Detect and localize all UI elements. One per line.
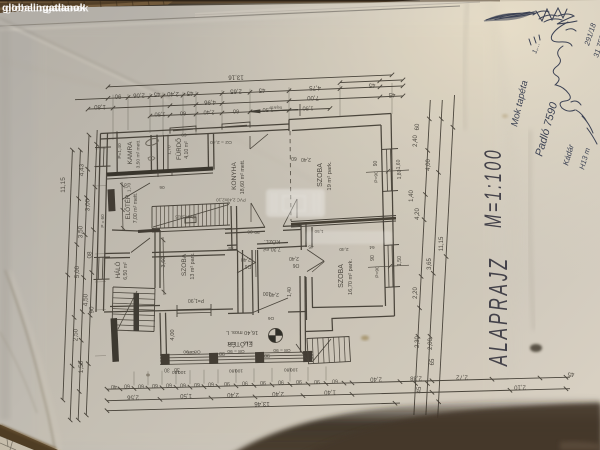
svg-text:KAMRA: KAMRA [127, 141, 134, 164]
svg-text:90: 90 [260, 379, 266, 385]
svg-text:O8 = 90: O8 = 90 [227, 348, 245, 354]
svg-text:1,50: 1,50 [78, 360, 85, 373]
svg-text:90: 90 [219, 350, 225, 356]
svg-text:45: 45 [258, 86, 265, 92]
svg-text:08: 08 [86, 251, 93, 259]
svg-text:60: 60 [415, 123, 421, 130]
svg-text:7,20 m²: 7,20 m² [263, 246, 281, 252]
svg-text:60: 60 [181, 132, 187, 138]
svg-text:17x17,5x25: 17x17,5x25 [175, 215, 197, 220]
svg-text:1,70: 1,70 [127, 183, 133, 193]
svg-text:3,00: 3,00 [84, 198, 91, 211]
svg-text:60: 60 [332, 377, 338, 383]
svg-text:13,16: 13,16 [228, 74, 244, 81]
svg-text:90: 90 [254, 230, 260, 235]
svg-text:1,40: 1,40 [287, 287, 293, 297]
svg-text:2,30: 2,30 [415, 336, 421, 348]
svg-text:45: 45 [368, 82, 375, 88]
svg-text:3,60: 3,60 [161, 257, 167, 268]
svg-text:2,72: 2,72 [456, 374, 468, 380]
svg-text:60: 60 [166, 382, 172, 388]
svg-text:100: 100 [235, 368, 243, 374]
svg-text:2,40: 2,40 [241, 256, 251, 262]
svg-text:O8 = 90: O8 = 90 [273, 347, 291, 353]
svg-text:3,50: 3,50 [77, 225, 84, 238]
svg-text:60: 60 [180, 381, 186, 387]
svg-text:ELŐTÉR: ELŐTÉR [125, 194, 132, 219]
svg-text:1,50: 1,50 [155, 111, 166, 117]
svg-text:bejárat: bejárat [269, 106, 282, 110]
svg-text:P=90: P=90 [374, 171, 380, 183]
svg-text:18,60 m² mett.: 18,60 m² mett. [240, 160, 246, 195]
svg-text:1,50: 1,50 [303, 104, 314, 110]
svg-text:O2 = 2,40: O2 = 2,40 [210, 139, 232, 145]
svg-text:2,40: 2,40 [413, 135, 419, 147]
svg-text:60: 60 [138, 382, 144, 388]
svg-text:45: 45 [388, 91, 395, 97]
svg-text:2,00: 2,00 [428, 338, 434, 350]
svg-text:45: 45 [308, 244, 314, 250]
svg-text:2,50: 2,50 [72, 328, 79, 341]
svg-text:45: 45 [567, 371, 574, 377]
svg-text:11,15: 11,15 [439, 236, 445, 251]
svg-text:2,06: 2,06 [133, 92, 145, 98]
svg-text:13,46: 13,46 [254, 400, 270, 407]
svg-text:2,40: 2,40 [269, 291, 279, 297]
svg-text:2,40: 2,40 [272, 390, 284, 396]
svg-text:7,00 m² mett.: 7,00 m² mett. [133, 193, 139, 224]
svg-text:06: 06 [247, 230, 253, 235]
svg-text:90: 90 [314, 378, 320, 384]
svg-text:90: 90 [264, 352, 270, 358]
svg-text:globalingatlanok: globalingatlanok [5, 3, 89, 15]
svg-text:1,50: 1,50 [180, 392, 192, 398]
svg-text:4,50: 4,50 [83, 293, 90, 306]
svg-text:3,65: 3,65 [427, 258, 433, 270]
svg-text:1,40: 1,40 [324, 388, 336, 394]
svg-text:P=1,90: P=1,90 [188, 297, 204, 303]
svg-text:4,00: 4,00 [170, 329, 176, 340]
svg-text:40: 40 [111, 383, 117, 389]
svg-text:6,50 m²: 6,50 m² [123, 262, 129, 280]
svg-text:2,40: 2,40 [339, 246, 349, 252]
svg-text:1,40: 1,40 [409, 190, 415, 202]
svg-text:2,40: 2,40 [289, 255, 299, 261]
svg-text:2,40: 2,40 [204, 109, 215, 115]
svg-text:90: 90 [88, 306, 95, 314]
svg-text:19 m² park.: 19 m² park. [327, 161, 333, 191]
svg-text:P=90: P=90 [375, 266, 381, 278]
svg-text:1,50: 1,50 [397, 256, 403, 266]
svg-text:60: 60 [124, 383, 130, 389]
svg-text:7,00: 7,00 [307, 94, 319, 100]
svg-text:1,60: 1,60 [396, 159, 402, 169]
svg-text:60: 60 [208, 381, 214, 387]
svg-text:16,70 m² park.: 16,70 m² park. [348, 259, 354, 296]
svg-text:45: 45 [186, 89, 193, 95]
svg-text:1,70: 1,70 [167, 145, 172, 155]
svg-text:1,80: 1,80 [397, 169, 403, 179]
svg-text:4,20: 4,20 [415, 208, 421, 220]
svg-text:90: 90 [296, 378, 302, 384]
svg-text:90: 90 [242, 380, 248, 386]
svg-text:PVC 2,40x2,10: PVC 2,40x2,10 [216, 198, 246, 203]
svg-text:16,40 mos. L: 16,40 mos. L [226, 329, 258, 335]
svg-text:O6: O6 [244, 263, 251, 269]
svg-text:4,00: 4,00 [426, 159, 432, 171]
svg-text:60: 60 [152, 382, 158, 388]
svg-text:90: 90 [373, 161, 379, 167]
svg-text:SZOBA: SZOBA [317, 163, 324, 187]
svg-text:2,40: 2,40 [167, 90, 179, 96]
svg-text:ELŐTÉR: ELŐTÉR [227, 340, 253, 349]
svg-text:ALAPRAJZ: ALAPRAJZ [483, 256, 512, 367]
svg-text:2,65: 2,65 [230, 87, 242, 93]
svg-text:45: 45 [228, 245, 234, 251]
svg-text:4,10 m²: 4,10 m² [184, 141, 190, 159]
svg-text:M=1:100: M=1:100 [481, 148, 507, 228]
svg-text:2,20: 2,20 [413, 287, 419, 299]
svg-text:P = 60: P = 60 [100, 214, 105, 228]
svg-text:P=1,40: P=1,40 [117, 143, 123, 159]
svg-text:KÖZL.: KÖZL. [263, 238, 280, 245]
svg-text:65: 65 [430, 358, 436, 365]
svg-text:2,56: 2,56 [127, 394, 139, 400]
svg-text:4,43: 4,43 [79, 163, 86, 176]
svg-text:2,40: 2,40 [370, 376, 382, 382]
svg-text:90: 90 [370, 255, 376, 261]
svg-text:60: 60 [291, 155, 297, 161]
svg-text:2,10: 2,10 [514, 384, 526, 390]
svg-text:FÜRDŐ: FÜRDŐ [176, 138, 183, 160]
svg-text:90: 90 [114, 92, 121, 98]
svg-text:4,96: 4,96 [204, 99, 216, 105]
svg-text:5,00: 5,00 [74, 265, 81, 278]
svg-text:90: 90 [278, 379, 284, 385]
svg-text:SZOBA: SZOBA [181, 253, 188, 276]
svg-text:06: 06 [159, 185, 165, 190]
svg-text:1,80: 1,80 [94, 103, 106, 109]
svg-text:KONYHA: KONYHA [231, 161, 238, 189]
svg-text:100: 100 [290, 366, 298, 372]
svg-text:30: 30 [164, 367, 170, 373]
svg-text:O6: O6 [292, 262, 299, 268]
svg-text:2,40: 2,40 [301, 156, 311, 162]
svg-text:13 m² park.: 13 m² park. [190, 252, 196, 279]
svg-text:30: 30 [174, 366, 180, 372]
svg-text:SZOBA: SZOBA [338, 264, 345, 288]
svg-text:2,40: 2,40 [227, 391, 239, 397]
svg-text:90: 90 [224, 380, 230, 386]
svg-text:4,75: 4,75 [309, 84, 321, 90]
svg-text:60: 60 [233, 107, 239, 113]
svg-text:45: 45 [153, 91, 160, 97]
svg-text:11,15: 11,15 [60, 177, 67, 193]
svg-text:O6: O6 [267, 315, 274, 321]
svg-text:60: 60 [194, 381, 200, 387]
svg-text:HÁLÓ: HÁLÓ [115, 261, 122, 278]
svg-text:O8=: O8= [185, 349, 194, 355]
svg-text:3,50 m² mett.: 3,50 m² mett. [136, 140, 142, 169]
svg-text:64: 64 [369, 244, 375, 250]
svg-text:2,38: 2,38 [410, 375, 422, 381]
